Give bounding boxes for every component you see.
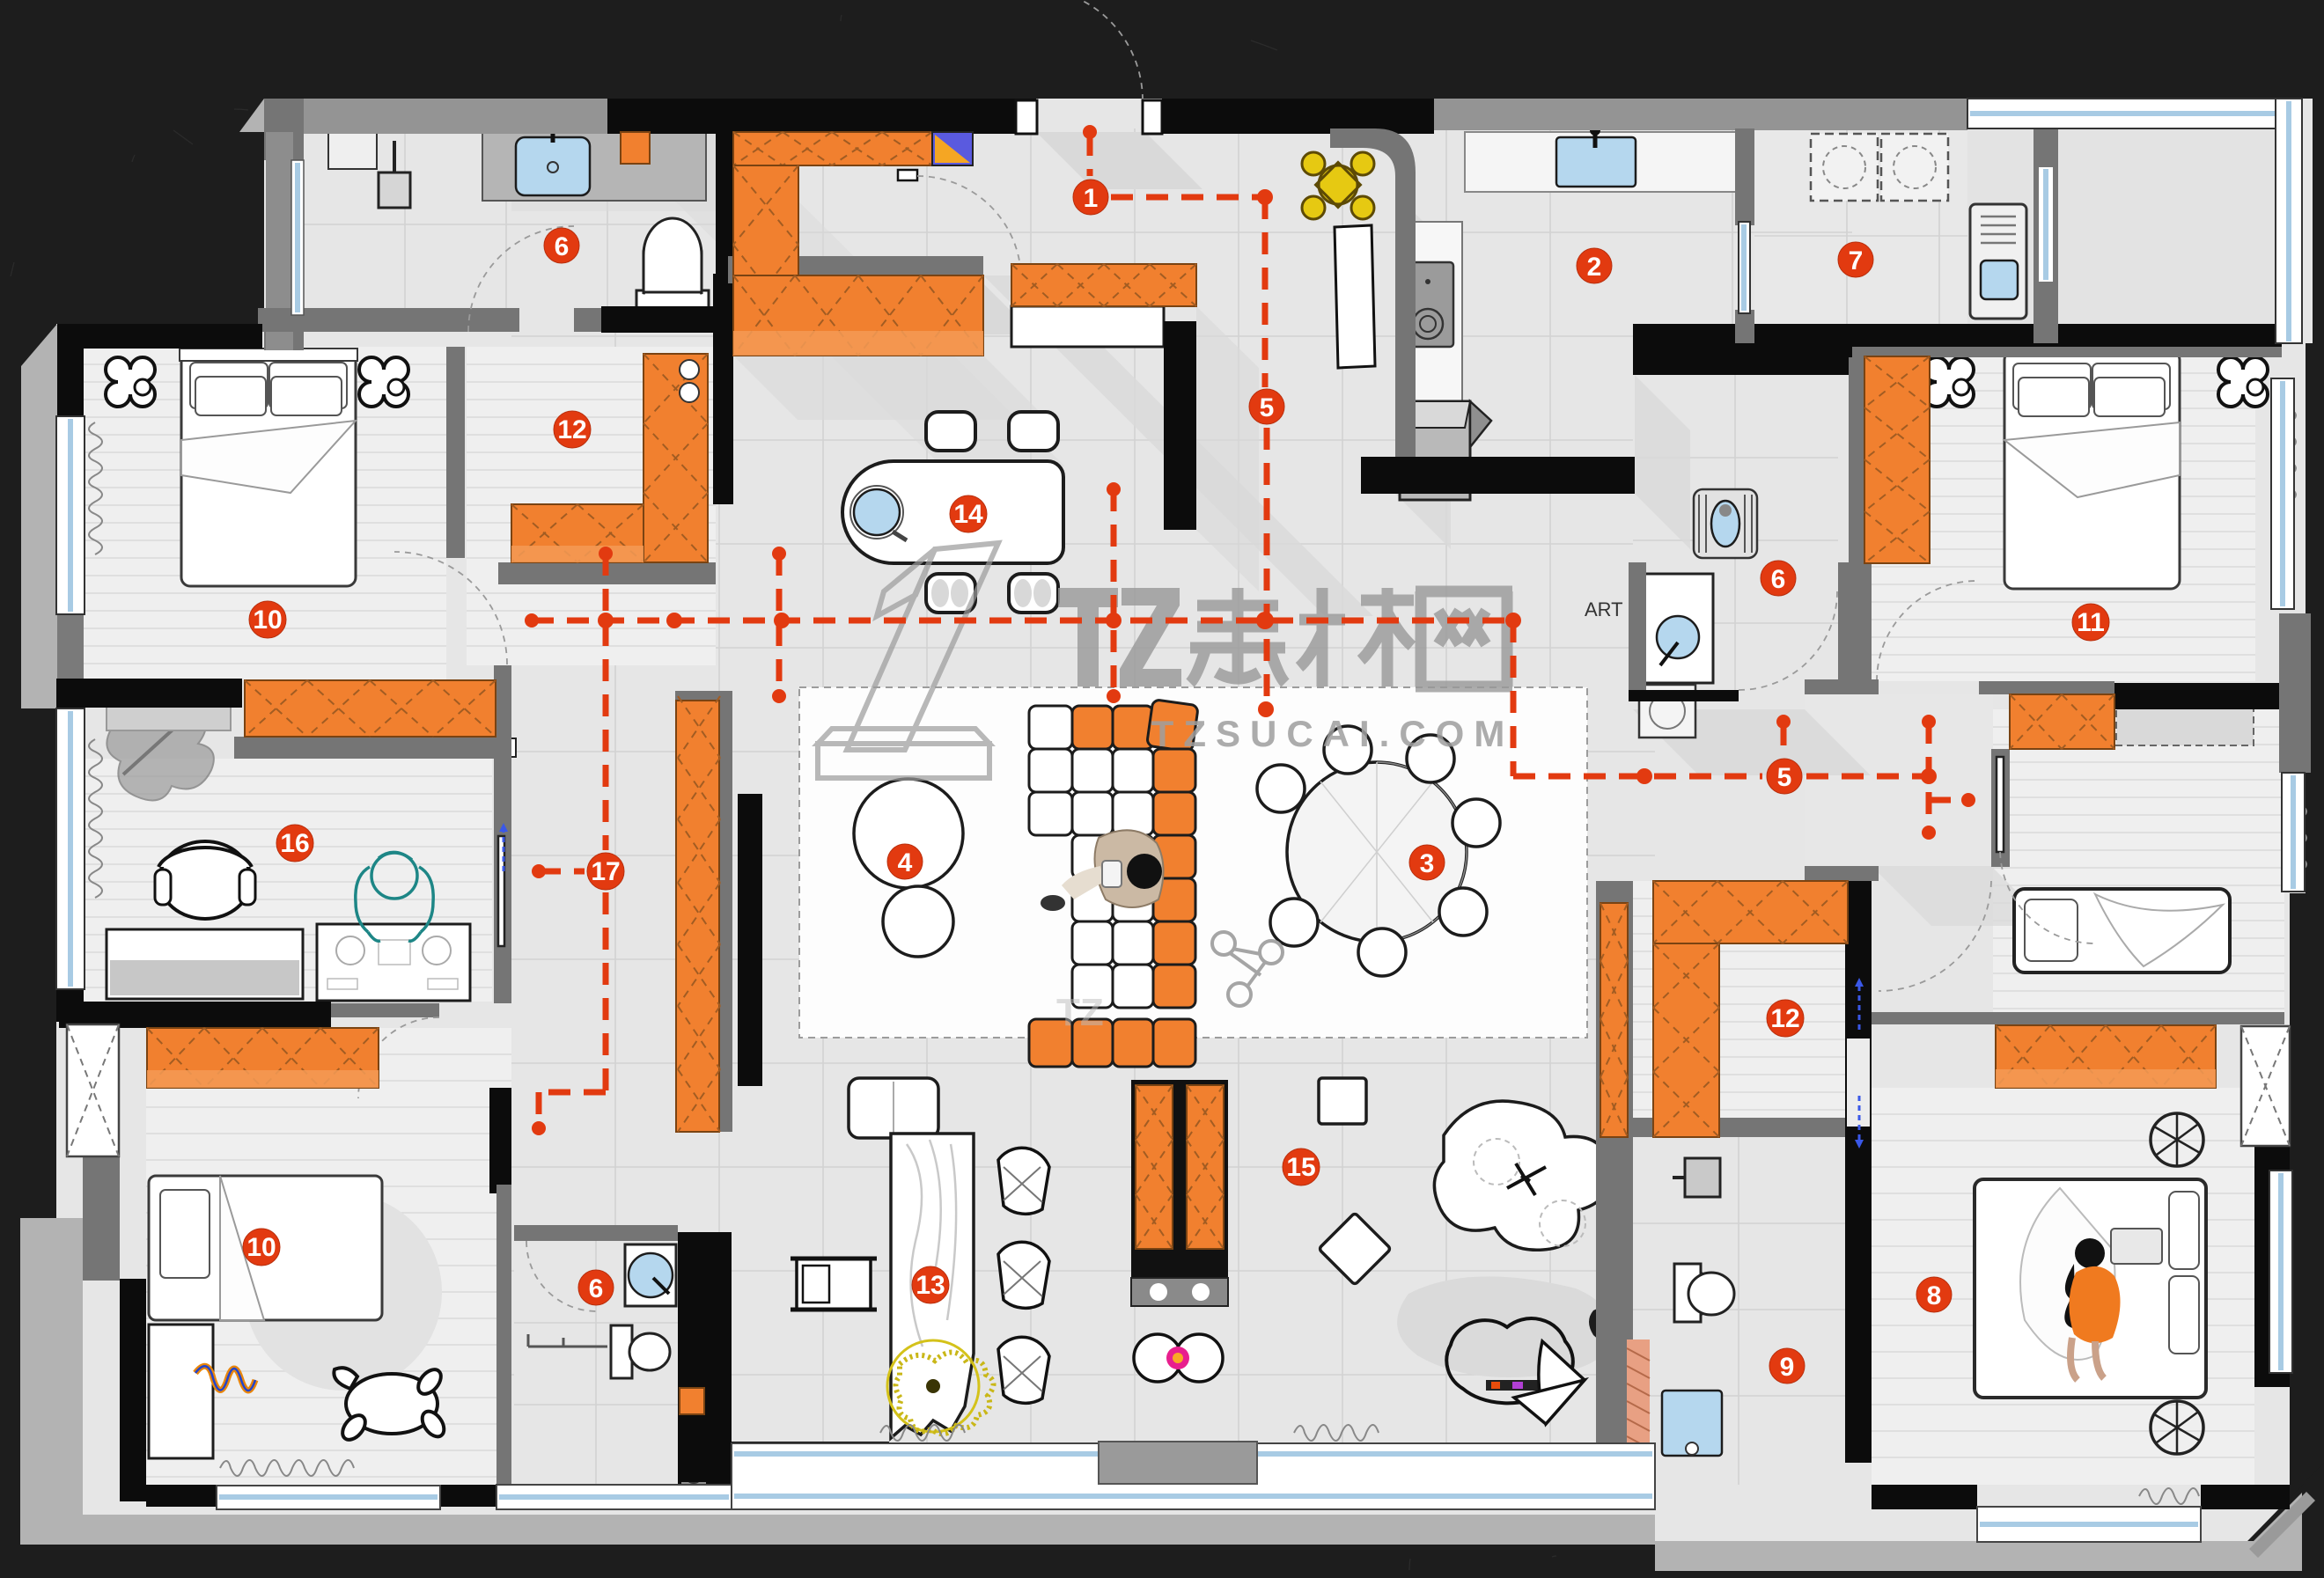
svg-text:5: 5 <box>1260 393 1275 422</box>
svg-text:14: 14 <box>953 500 983 529</box>
svg-text:8: 8 <box>1927 1281 1942 1310</box>
svg-text:12: 12 <box>557 415 586 444</box>
svg-text:7: 7 <box>1849 246 1864 275</box>
svg-text:11: 11 <box>2077 608 2105 637</box>
svg-text:13: 13 <box>916 1271 945 1300</box>
svg-text:5: 5 <box>1777 763 1792 792</box>
svg-text:15: 15 <box>1286 1153 1315 1182</box>
svg-text:10: 10 <box>253 606 282 635</box>
svg-text:17: 17 <box>591 857 620 886</box>
svg-text:TZSUCAI.COM: TZSUCAI.COM <box>1151 713 1515 754</box>
svg-text:9: 9 <box>1780 1353 1795 1382</box>
svg-text:1: 1 <box>1084 184 1099 213</box>
svg-text:10: 10 <box>246 1233 276 1262</box>
svg-text:12: 12 <box>1770 1004 1799 1033</box>
svg-text:TZ: TZ <box>1056 991 1104 1034</box>
svg-text:3: 3 <box>1420 849 1435 878</box>
svg-text:ART: ART <box>1585 598 1623 620</box>
svg-text:16: 16 <box>280 829 309 858</box>
svg-text:4: 4 <box>898 848 913 877</box>
svg-text:6: 6 <box>589 1274 604 1303</box>
svg-text:6: 6 <box>1771 565 1786 594</box>
svg-text:2: 2 <box>1587 253 1602 282</box>
svg-text:6: 6 <box>555 232 570 261</box>
